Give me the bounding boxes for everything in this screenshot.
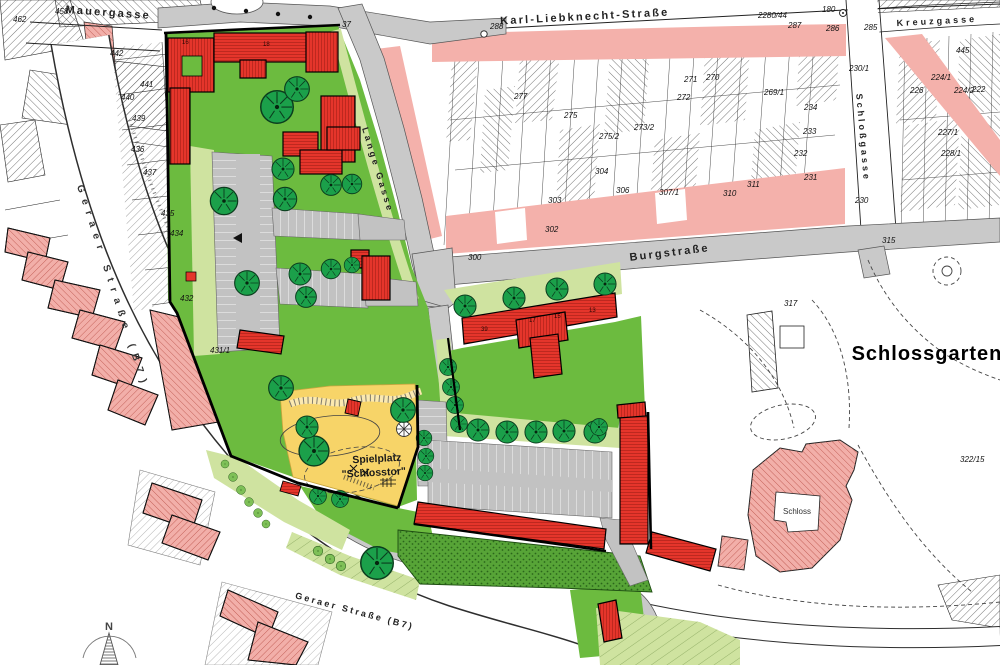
parcel-number: 439 [132, 114, 146, 123]
tree-icon [503, 287, 525, 309]
parcel-number: 288 [489, 22, 504, 31]
parcel-number: 306 [616, 186, 630, 195]
survey-point-icon [481, 31, 487, 37]
parcel-number: 310 [723, 189, 737, 198]
parcel-number: 285 [863, 23, 878, 32]
building-number: 39 [481, 327, 488, 333]
building-number: 15 [554, 314, 561, 320]
bush-icon [325, 554, 335, 564]
parcel-number: 435 [161, 209, 175, 218]
parcel-number: 302 [545, 225, 559, 234]
tree-icon [594, 273, 616, 295]
building-number: 13 [589, 308, 596, 314]
parcel-number: 317 [784, 299, 798, 308]
parcel-number: 230/1 [848, 64, 869, 73]
tree-icon [272, 158, 294, 180]
parcel-number: 441 [140, 80, 153, 89]
tree-icon [289, 263, 311, 285]
parcel-number: 275/2 [598, 132, 620, 141]
bush-icon [336, 561, 346, 571]
parcel-number: 315 [882, 236, 896, 245]
bush-icon [245, 498, 254, 507]
bush-icon [262, 520, 270, 528]
tree-icon [553, 420, 575, 442]
tree-icon [391, 398, 416, 423]
tree-icon [344, 257, 360, 273]
building-number: 17 [529, 318, 536, 324]
tree-icon [443, 379, 460, 396]
tree-icon [210, 187, 237, 214]
parcel-number: 440 [121, 93, 135, 102]
tree-icon [525, 421, 547, 443]
parcel-number: 234 [803, 103, 818, 112]
site-plan-page: Mauergasse Karl-Liebknecht-Straße Kreuzg… [0, 0, 1000, 665]
parcel-number: 230 [854, 196, 869, 205]
parcel-number: 270 [705, 73, 720, 82]
area-label-schlossgarten: Schlossgarten [852, 343, 1000, 365]
building-number: 16 [182, 40, 189, 46]
bush-icon [229, 473, 238, 482]
tree-icon [342, 174, 362, 194]
tree-icon [296, 416, 318, 438]
site-plan-map: Mauergasse Karl-Liebknecht-Straße Kreuzg… [0, 0, 1000, 665]
parcel-number: 442 [110, 49, 124, 58]
parcel-number: 304 [595, 167, 609, 176]
tree-icon [235, 271, 260, 296]
parcel-number: 437 [143, 168, 157, 177]
parcel-number: 431/1 [210, 346, 230, 355]
north-label: N [105, 621, 113, 633]
building-number: 18 [263, 42, 270, 48]
parcel-number: 458 [55, 7, 69, 16]
parcel-number: 224/1 [930, 73, 951, 82]
tree-icon [269, 376, 294, 401]
east-row [620, 416, 648, 544]
parcel-number: 232 [793, 149, 808, 158]
tree-icon [361, 547, 394, 580]
tree-icon [321, 259, 341, 279]
parcel-number: 286 [825, 24, 840, 33]
tree-icon [299, 436, 329, 466]
parcel-number: 233 [802, 127, 817, 136]
parcel-number: 273/2 [633, 123, 655, 132]
parcel-number: 436 [131, 145, 145, 154]
parcel-number: 277 [513, 92, 528, 101]
tree-icon [418, 448, 434, 464]
parcel-number: 226 [909, 86, 924, 95]
parcel-number: 269/1 [763, 88, 784, 97]
bush-icon [254, 509, 263, 518]
tree-icon [546, 278, 568, 300]
parcel-number: 287 [787, 21, 802, 30]
parcel-number: 322/15 [960, 455, 985, 464]
bush-icon [221, 460, 229, 468]
parcel-number: 222 [971, 85, 986, 94]
area-label-schloss: Schloss [783, 507, 811, 516]
tree-icon [417, 465, 433, 481]
tree-icon [496, 421, 518, 443]
parcel-number: 311 [747, 180, 760, 189]
parcel-number: 231 [803, 173, 817, 182]
bush-icon [237, 486, 246, 495]
parcel-number: 275 [563, 111, 578, 120]
bush-icon [313, 546, 323, 556]
tree-icon [321, 175, 342, 196]
playground-label-1: Spielplatz [352, 452, 402, 467]
tree-icon [440, 359, 457, 376]
tree-icon [454, 295, 476, 317]
parcel-number: 303 [548, 196, 562, 205]
parcel-number: 2280/44 [757, 11, 787, 20]
parcel-number: 271 [683, 75, 697, 84]
parcel-number: 180 [822, 5, 836, 14]
parcel-number: 300 [468, 253, 482, 262]
parcel-number: 434 [170, 229, 184, 238]
parcel-number: 37 [342, 20, 351, 29]
parcel-number: 445 [956, 46, 970, 55]
parcel-number: 462 [13, 15, 27, 24]
parcel-number: 272 [676, 93, 691, 102]
parcel-number: 307/1 [659, 188, 679, 197]
tree-icon [296, 287, 317, 308]
tree-icon [467, 419, 489, 441]
parcel-number: 228/1 [940, 149, 961, 158]
parcel-number: 432 [180, 294, 194, 303]
tree-icon [591, 419, 608, 436]
tree-icon [273, 187, 296, 210]
tree-icon [285, 77, 310, 102]
parcel-number: 227/1 [937, 128, 958, 137]
